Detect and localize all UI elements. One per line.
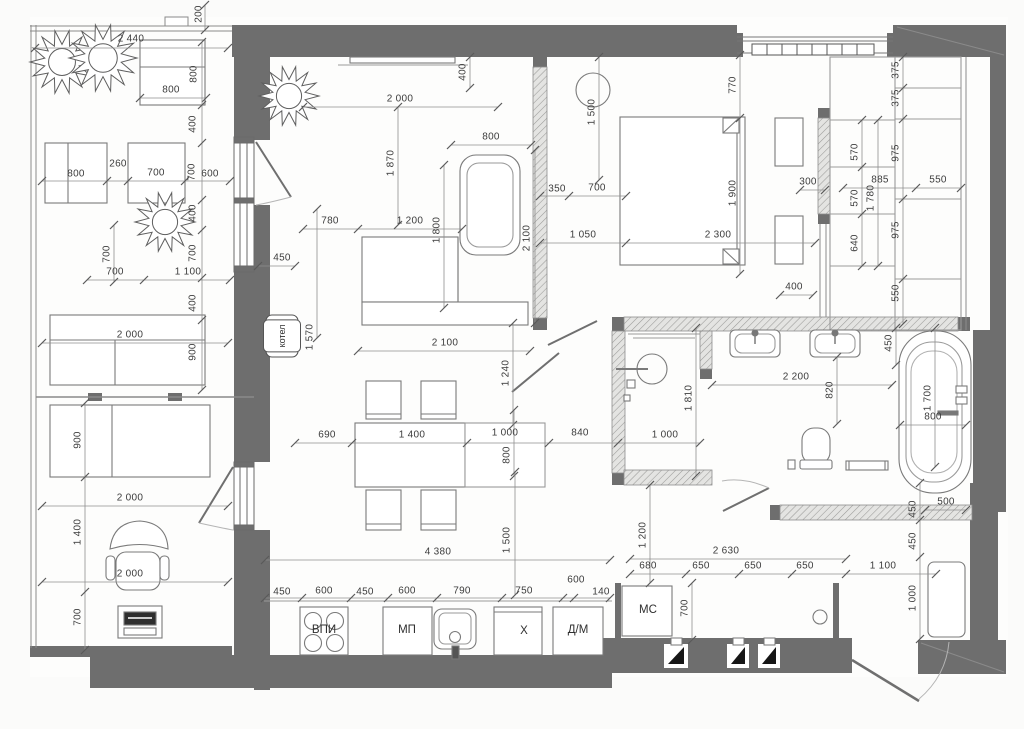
nightstand — [775, 216, 803, 264]
balcony-seat — [128, 143, 185, 203]
radiator — [752, 44, 874, 55]
dining-chair — [421, 381, 456, 419]
balcony-table — [45, 143, 107, 203]
floor-plan: 2002 44080080040080026070070060040070070… — [0, 0, 1024, 729]
armchair — [460, 155, 520, 255]
dining-chair — [366, 490, 401, 530]
balcony-storage — [140, 40, 205, 105]
printer — [118, 606, 162, 638]
dining-chair — [366, 381, 401, 419]
nightstand — [775, 118, 803, 166]
sink — [730, 330, 780, 357]
dining-table — [355, 423, 545, 487]
boiler-box — [266, 315, 298, 357]
hall-cabinet — [928, 562, 965, 637]
fridge — [494, 607, 542, 655]
floor-plan-drawing — [0, 0, 1024, 729]
sink — [810, 330, 860, 357]
balcony-bench — [50, 315, 205, 385]
daybed — [50, 405, 210, 477]
dishwasher-cabinet — [553, 607, 603, 655]
cooktop — [300, 607, 348, 655]
microwave-cabinet — [383, 607, 432, 655]
bath-bench — [846, 461, 888, 470]
washing-machine — [622, 586, 672, 636]
dining-chair — [421, 490, 456, 530]
